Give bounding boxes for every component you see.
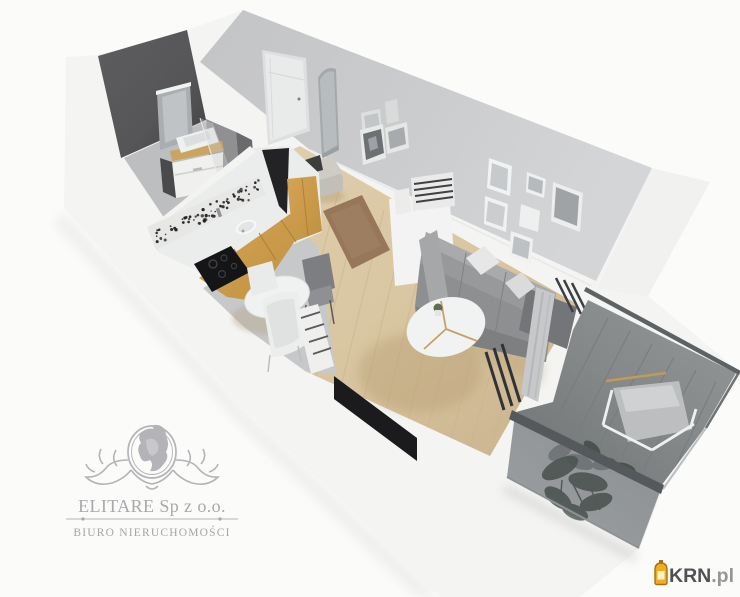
svg-text:ELITARE Sp z o.o.: ELITARE Sp z o.o. (78, 496, 226, 516)
svg-text:KRN.pl: KRN.pl (669, 565, 734, 587)
svg-text:BIURO NIERUCHOMOŚCI: BIURO NIERUCHOMOŚCI (73, 525, 230, 539)
